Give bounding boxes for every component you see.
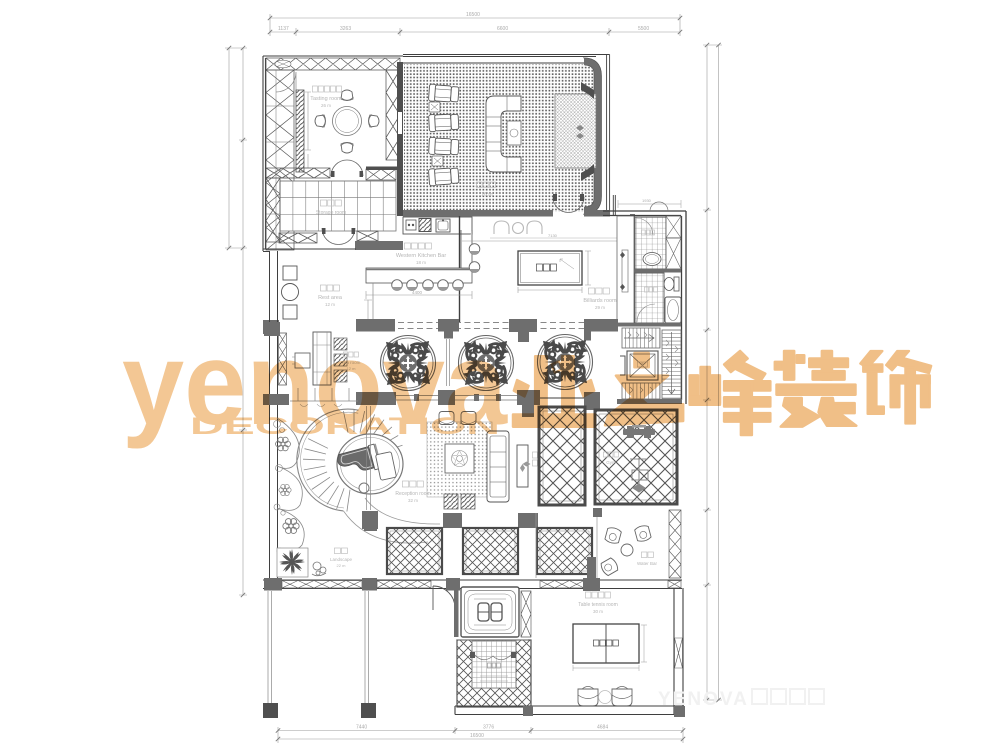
svg-text:16500: 16500 <box>470 733 484 739</box>
svg-text:Gym: Gym <box>606 460 616 465</box>
svg-text:4684: 4684 <box>597 725 608 731</box>
svg-text:Tasting room: Tasting room <box>310 96 342 102</box>
svg-text:Rest area: Rest area <box>318 295 343 301</box>
svg-text:26 m: 26 m <box>481 192 492 198</box>
svg-text:22 m: 22 m <box>337 563 347 568</box>
svg-text:4400: 4400 <box>412 290 423 295</box>
svg-text:1137: 1137 <box>278 26 289 32</box>
svg-text:29 m: 29 m <box>595 305 605 310</box>
svg-text:Western Kitchen Bar: Western Kitchen Bar <box>396 253 447 259</box>
svg-text:26 m: 26 m <box>321 103 331 108</box>
svg-text:32 m: 32 m <box>408 498 418 503</box>
svg-text:Storage room: Storage room <box>316 210 346 216</box>
svg-text:7130: 7130 <box>548 233 558 238</box>
svg-text:5500: 5500 <box>638 26 649 32</box>
svg-text:3776: 3776 <box>483 725 494 731</box>
svg-text:3263: 3263 <box>340 26 351 32</box>
svg-text:16500: 16500 <box>466 12 480 18</box>
svg-text:18 m: 18 m <box>416 260 426 265</box>
svg-text:Table tennis room: Table tennis room <box>578 602 617 608</box>
svg-text:Water Bar: Water Bar <box>637 561 658 566</box>
svg-text:YENOVA: YENOVA <box>658 689 749 710</box>
svg-text:Reception room: Reception room <box>395 491 430 497</box>
svg-text:1930: 1930 <box>642 198 652 203</box>
svg-text:6600: 6600 <box>497 26 508 32</box>
svg-text:7440: 7440 <box>356 725 367 731</box>
svg-text:12 m: 12 m <box>325 302 335 307</box>
svg-text:30 m: 30 m <box>593 609 603 614</box>
svg-text:DECORATION: DECORATION <box>190 413 500 440</box>
svg-text:Billiards room: Billiards room <box>583 298 617 304</box>
svg-text:Landscape: Landscape <box>330 557 353 562</box>
